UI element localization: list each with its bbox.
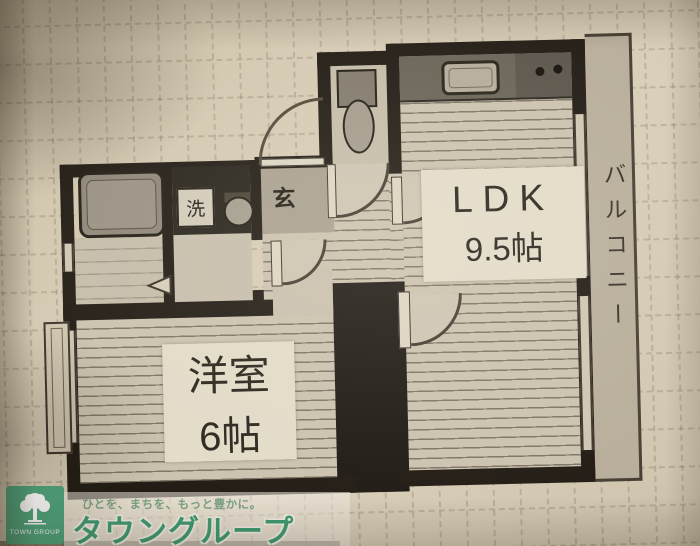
bathtub xyxy=(78,170,166,238)
watermark-brand: タウングループ xyxy=(72,506,294,546)
kitchen-counter xyxy=(399,52,572,102)
tree-icon xyxy=(15,490,55,528)
floorplan-photo: バルコニー xyxy=(0,0,700,546)
kitchen-counter-right xyxy=(515,52,572,97)
bedroom-size: 6帖 xyxy=(198,403,262,463)
ldk-door xyxy=(391,176,403,224)
washroom-door xyxy=(271,240,283,286)
ldk-size: 9.5帖 xyxy=(464,221,544,271)
plan-paper: バルコニー xyxy=(0,0,700,546)
washroom-floor xyxy=(173,233,253,302)
wall-bath-left xyxy=(60,165,77,320)
watermark-logo: TOWN GROUP xyxy=(6,486,64,544)
window-bay xyxy=(43,322,72,455)
wall-ldk-bottom xyxy=(400,466,595,487)
washing-machine-space: 洗 xyxy=(176,187,215,228)
wall-washroom-entrance-upper xyxy=(250,160,263,240)
door-arc-entrance xyxy=(257,97,325,165)
ldk-label-box: LDK 9.5帖 xyxy=(421,166,587,282)
bathroom-window xyxy=(63,244,75,272)
bedroom-label-box: 洋室 6帖 xyxy=(162,341,297,462)
floorplan-drawing: バルコニー xyxy=(0,0,700,546)
balcony-label: バルコニー xyxy=(596,162,634,338)
entrance-label: 玄 xyxy=(272,179,296,214)
bath-door-triangle xyxy=(146,274,173,297)
bedroom-name: 洋室 xyxy=(187,341,270,403)
ldk-lower-door xyxy=(398,291,411,348)
ldk-name: LDK xyxy=(452,177,555,221)
kitchen-sink xyxy=(441,60,500,95)
hallway-floor-3 xyxy=(334,231,391,285)
logo-caption: TOWN GROUP xyxy=(10,529,60,536)
laundry-label: 洗 xyxy=(186,194,206,221)
toilet-door xyxy=(327,164,337,218)
